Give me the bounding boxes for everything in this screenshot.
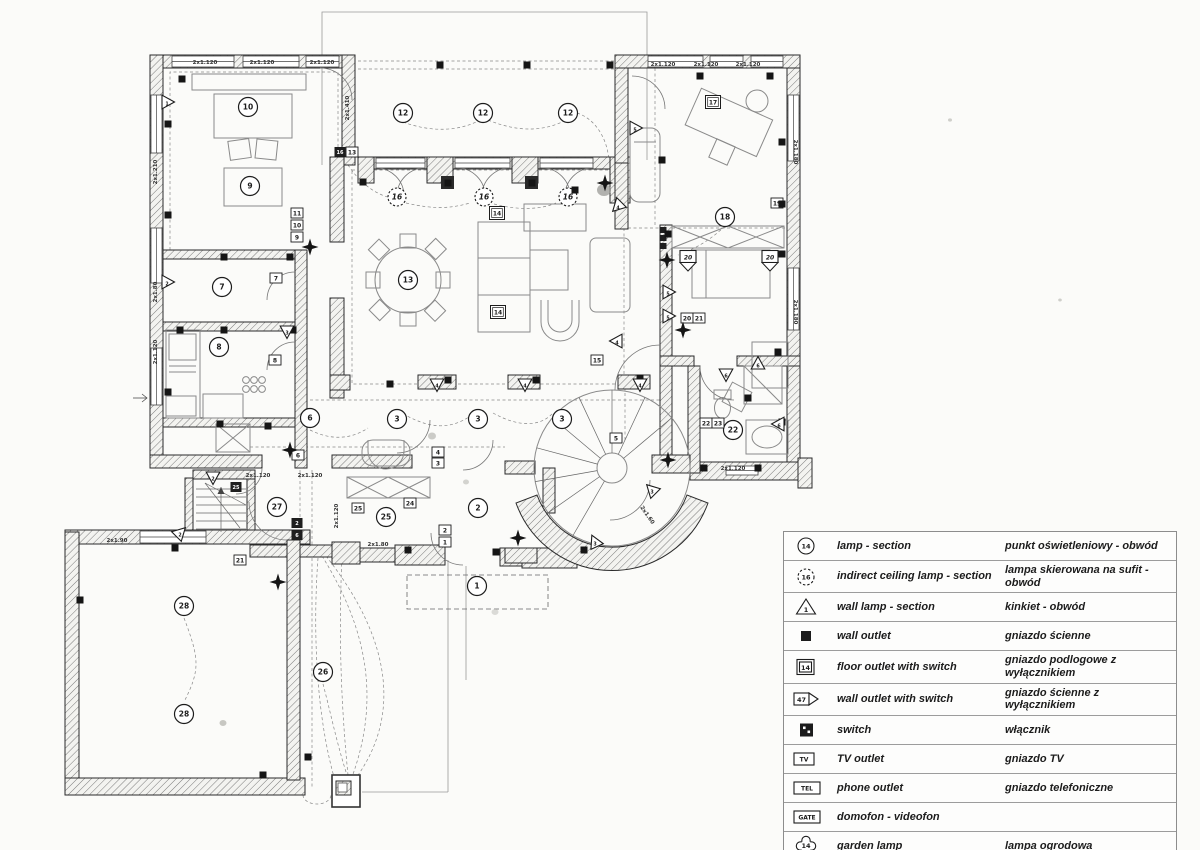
wall-outlet-symbol [745, 395, 752, 402]
svg-text:10: 10 [293, 222, 301, 229]
legend-label-pl: lampa ogrodowa [1005, 840, 1172, 850]
circle-icon: 14 [791, 535, 823, 557]
svg-text:20: 20 [684, 255, 692, 262]
boxed-label: 7 [270, 273, 282, 283]
room-number-circle: 18 [716, 208, 735, 227]
boxed-label: 9 [291, 232, 303, 242]
wall-outlet-symbol [260, 772, 267, 779]
legend-label-en: lamp - section [837, 540, 1005, 553]
svg-text:25: 25 [233, 485, 240, 491]
boxed-label: 21 [693, 313, 705, 323]
legend-symbol: 16 [791, 566, 837, 588]
boxed-label: 20 [680, 251, 696, 272]
svg-text:7: 7 [219, 283, 224, 292]
svg-text:2: 2 [475, 504, 480, 513]
indirect-lamp-circle: 16 [388, 188, 406, 206]
room-number-circle: 26 [314, 663, 333, 682]
wall-outlet-symbol [221, 254, 228, 261]
svg-text:6: 6 [296, 452, 300, 459]
wall-outlet-symbol [165, 389, 172, 396]
legend-row: switchwłącznik [784, 715, 1176, 744]
svg-text:1: 1 [165, 101, 168, 107]
svg-text:5: 5 [614, 435, 618, 442]
svg-text:25: 25 [381, 513, 391, 522]
legend-label-en: floor outlet with switch [837, 661, 1005, 674]
box-icon: GATE [791, 806, 823, 828]
boxed-label: 5 [610, 433, 622, 443]
legend-label-en: indirect ceiling lamp - section [837, 570, 1005, 583]
boxed-label: 21 [234, 555, 246, 565]
legend-label-en: phone outlet [837, 782, 1005, 795]
boxed-label: 4 [432, 447, 444, 457]
svg-text:14: 14 [801, 664, 811, 672]
room-number-circle: 12 [474, 104, 493, 123]
dimension-label: 2x1.80 [368, 542, 389, 548]
dimension-label: 2x1.120 [694, 62, 719, 68]
svg-text:3: 3 [559, 415, 564, 424]
svg-text:4: 4 [436, 449, 440, 456]
svg-text:7: 7 [274, 275, 278, 282]
legend-label-en: garden lamp [837, 840, 1005, 850]
svg-text:2: 2 [211, 476, 214, 482]
wall-lamp-symbol: 6 [772, 417, 785, 431]
svg-text:28: 28 [179, 710, 189, 719]
wall-outlet-symbol [287, 254, 294, 261]
svg-text:6: 6 [295, 533, 299, 539]
boxed-label: 20 [762, 251, 778, 272]
room-number-circle: 2 [469, 499, 488, 518]
boxed-label: 1 [439, 537, 451, 547]
boxed-label: 17 [706, 96, 721, 109]
legend-row: 1wall lamp - sectionkinkiet - obwód [784, 592, 1176, 621]
svg-text:26: 26 [318, 668, 328, 677]
svg-text:2: 2 [165, 281, 168, 287]
svg-text:47: 47 [797, 696, 806, 704]
svg-text:5: 5 [666, 315, 669, 321]
legend-label-pl: gniazdo podlogowe z wyłącznikiem [1005, 654, 1172, 679]
room-number-circle: 8 [210, 338, 229, 357]
svg-text:1: 1 [474, 582, 479, 591]
wall-lamp-symbol: 1 [162, 95, 175, 109]
svg-text:5: 5 [633, 127, 636, 133]
wall-outlet-symbol [172, 545, 179, 552]
double-box-icon: 14 [791, 656, 823, 678]
wall-outlet-symbol [305, 754, 312, 761]
wall-outlet-symbol [387, 381, 394, 388]
vacuum-outlet-symbol [675, 322, 692, 339]
room-number-circle: 12 [559, 104, 578, 123]
boxed-label: 22 [700, 418, 712, 428]
wall-outlet-symbol [779, 201, 786, 208]
svg-text:14: 14 [801, 842, 811, 850]
svg-text:10: 10 [243, 103, 253, 112]
wall-outlet-symbol [360, 179, 367, 186]
dimension-label: 2x1.120 [736, 62, 761, 68]
boxed-label: 25 [231, 483, 241, 492]
svg-text:28: 28 [179, 602, 189, 611]
legend-symbol: 14 [791, 535, 837, 557]
filled-square-icon [791, 625, 823, 647]
dimension-label: 2x1.60 [638, 505, 655, 526]
legend-label-pl: gniazdo telefoniczne [1005, 782, 1172, 795]
svg-text:14: 14 [494, 309, 502, 316]
boxed-label: 3 [432, 458, 444, 468]
svg-text:16: 16 [479, 192, 489, 201]
legend-symbol: 47 [791, 688, 837, 710]
svg-text:21: 21 [236, 557, 244, 564]
svg-text:3: 3 [285, 330, 288, 336]
wall-outlet-symbol [755, 465, 762, 472]
legend-label-pl: punkt oświetleniowy - obwód [1005, 540, 1172, 553]
wall-lamp-symbol: 3 [642, 480, 660, 498]
boxed-label: 11 [291, 208, 303, 218]
wall-outlet-symbol [177, 327, 184, 334]
dimension-label: 2x1.210 [153, 159, 159, 184]
boxed-label: 14 [490, 207, 505, 220]
svg-text:3: 3 [593, 541, 596, 547]
legend-symbol [791, 625, 837, 647]
legend-row: TELphone outletgniazdo telefoniczne [784, 773, 1176, 802]
legend-row: 14lamp - sectionpunkt oświetleniowy - ob… [784, 532, 1176, 560]
room-number-circle: 3 [469, 410, 488, 429]
svg-text:13: 13 [348, 149, 356, 156]
legend-label-en: wall outlet with switch [837, 693, 1005, 706]
box-icon: TEL [791, 777, 823, 799]
boxed-label: 20 [681, 313, 693, 323]
vacuum-outlet-symbol [270, 574, 287, 591]
svg-text:27: 27 [272, 503, 282, 512]
legend-row: 14garden lamplampa ogrodowa [784, 831, 1176, 850]
svg-text:3: 3 [394, 415, 399, 424]
room-number-circle: 28 [175, 597, 194, 616]
svg-text:9: 9 [295, 234, 299, 241]
boxed-label: 2 [292, 519, 302, 528]
svg-text:22: 22 [728, 426, 738, 435]
indirect-lamp-circle: 16 [475, 188, 493, 206]
room-number-circle: 25 [377, 508, 396, 527]
wall-outlet-symbol [665, 231, 672, 238]
svg-text:20: 20 [766, 255, 774, 262]
svg-text:GATE: GATE [798, 814, 815, 821]
boxed-label: 14 [491, 306, 506, 319]
wall-lamp-symbol: 5 [630, 121, 643, 135]
svg-text:21: 21 [695, 315, 703, 322]
wall-outlet-symbol [533, 377, 540, 384]
dimension-label: 2x1.120 [651, 62, 676, 68]
dimension-label: 2x1.120 [721, 466, 746, 472]
dashed-circle-icon: 16 [791, 566, 823, 588]
svg-text:1: 1 [443, 539, 447, 546]
legend-symbol: 14 [791, 656, 837, 678]
svg-text:17: 17 [709, 99, 717, 106]
boxed-label: 6 [292, 450, 304, 460]
wall-outlet-symbol [572, 187, 579, 194]
svg-text:12: 12 [563, 109, 573, 118]
legend-label-en: wall lamp - section [837, 601, 1005, 614]
legend-symbol: GATE [791, 806, 837, 828]
svg-text:16: 16 [563, 192, 573, 201]
legend-label-pl: kinkiet - obwód [1005, 601, 1172, 614]
room-number-circle: 27 [268, 498, 287, 517]
room-number-circle: 9 [241, 177, 260, 196]
wall-outlet-symbol [779, 139, 786, 146]
legend-label-pl: lampa skierowana na sufit - obwód [1005, 564, 1172, 589]
svg-text:5: 5 [666, 291, 669, 297]
wall-outlet-symbol [581, 547, 588, 554]
legend-symbol: 1 [791, 596, 837, 618]
room-number-circle: 22 [724, 421, 743, 440]
legend-label-pl: gniazdo ścienne z wyłącznikiem [1005, 687, 1172, 712]
wall-outlet-symbol [165, 121, 172, 128]
svg-text:12: 12 [398, 109, 408, 118]
legend-row: 14floor outlet with switchgniazdo podlog… [784, 650, 1176, 682]
svg-text:8: 8 [216, 343, 221, 352]
boxed-label: 16 [335, 148, 345, 157]
svg-text:TEL: TEL [801, 785, 813, 792]
dimension-label: 2x1.120 [250, 60, 275, 66]
boxed-label: 23 [712, 418, 724, 428]
boxed-label: 15 [591, 355, 603, 365]
wall-outlet-symbol [659, 157, 666, 164]
dimension-label: 2x1.180 [792, 140, 798, 165]
dimension-label: 2x1.120 [193, 60, 218, 66]
boxed-label: 25 [352, 503, 364, 513]
svg-text:13: 13 [403, 276, 413, 285]
dimension-label: 2x1.410 [345, 95, 351, 120]
wall-outlet-symbol [524, 62, 531, 69]
svg-text:2: 2 [178, 532, 181, 538]
wall-outlet-symbol [445, 377, 452, 384]
flower-icon: 14 [791, 835, 823, 850]
boxed-label [660, 243, 667, 249]
legend-label-en: domofon - videofon [837, 811, 1005, 824]
switch-icon [791, 719, 823, 741]
wall-outlet-symbol [221, 327, 228, 334]
legend-row: 47wall outlet with switchgniazdo ścienne… [784, 683, 1176, 715]
legend-row: 16indirect ceiling lamp - sectionlampa s… [784, 560, 1176, 592]
wall-outlet-symbol [775, 349, 782, 356]
boxed-label: 8 [269, 355, 281, 365]
svg-text:12: 12 [478, 109, 488, 118]
svg-text:15: 15 [593, 357, 601, 364]
wall-outlet-symbol [165, 212, 172, 219]
wall-lamp-symbol: 2 [162, 275, 175, 289]
wall-outlet-symbol [217, 421, 224, 428]
room-number-circle: 12 [394, 104, 413, 123]
wall-outlet-symbol [607, 62, 614, 69]
boxed-label: 6 [292, 531, 302, 540]
wall-outlet-symbol [405, 547, 412, 554]
legend-row: GATEdomofon - videofon [784, 802, 1176, 831]
legend-symbol: TEL [791, 777, 837, 799]
legend-label-en: TV outlet [837, 753, 1005, 766]
svg-text:16: 16 [801, 573, 811, 581]
legend-table: 14lamp - sectionpunkt oświetleniowy - ob… [783, 531, 1177, 850]
box-icon: TV [791, 748, 823, 770]
wall-outlet-symbol [529, 180, 536, 187]
svg-text:3: 3 [436, 460, 440, 467]
svg-text:23: 23 [714, 420, 722, 427]
legend-symbol: TV [791, 748, 837, 770]
svg-text:8: 8 [273, 357, 277, 364]
wall-outlet-symbol [437, 62, 444, 69]
wall-outlet-symbol [445, 180, 452, 187]
room-number-circle: 10 [239, 98, 258, 117]
pennant-box-icon: 47 [791, 688, 823, 710]
dimension-label: 2x1.90 [107, 538, 128, 544]
wall-outlet-symbol [179, 76, 186, 83]
legend-label-en: wall outlet [837, 630, 1005, 643]
room-number-circle: 7 [213, 278, 232, 297]
wall-outlet-symbol [767, 73, 774, 80]
svg-text:3: 3 [650, 489, 653, 495]
legend-label-pl: włącznik [1005, 724, 1172, 737]
svg-text:18: 18 [720, 213, 730, 222]
dimension-label: 2x1.180 [792, 300, 798, 325]
wall-lamp-symbol: 4 [610, 334, 623, 348]
room-number-circle: 6 [301, 409, 320, 428]
dimension-label: 2x1.120 [334, 503, 340, 528]
legend-row: wall outletgniazdo ścienne [784, 621, 1176, 650]
svg-text:14: 14 [493, 210, 501, 217]
svg-text:6: 6 [307, 414, 312, 423]
svg-text:2: 2 [443, 527, 447, 534]
dimension-label: 2x1.120 [298, 473, 323, 479]
dimension-label: 2x1.120 [153, 339, 159, 364]
boxed-label: 10 [291, 220, 303, 230]
room-number-circle: 3 [388, 410, 407, 429]
dimension-label: 2x1.80 [153, 281, 159, 302]
svg-text:3: 3 [475, 415, 480, 424]
svg-text:14: 14 [801, 543, 811, 551]
vacuum-outlet-symbol [510, 530, 527, 547]
wall-outlet-symbol [701, 465, 708, 472]
boxed-label: 2 [439, 525, 451, 535]
wall-outlet-symbol [77, 597, 84, 604]
svg-text:TV: TV [800, 756, 809, 763]
legend-label-pl: gniazdo TV [1005, 753, 1172, 766]
legend-label-pl: gniazdo ścienne [1005, 630, 1172, 643]
svg-text:16: 16 [337, 150, 344, 156]
legend-label-en: switch [837, 724, 1005, 737]
floor-plan-page: 1097861212121318223332725212828261616161… [0, 0, 1200, 850]
triangle-icon: 1 [791, 596, 823, 618]
svg-text:2: 2 [295, 521, 299, 527]
wall-outlet-symbol [697, 73, 704, 80]
svg-text:11: 11 [293, 210, 301, 217]
legend-row: TVTV outletgniazdo TV [784, 744, 1176, 773]
boxed-label: 13 [346, 147, 358, 157]
room-number-circle: 28 [175, 705, 194, 724]
legend-symbol [791, 719, 837, 741]
svg-text:25: 25 [354, 505, 362, 512]
room-number-circle: 1 [468, 577, 487, 596]
room-number-circle: 3 [553, 410, 572, 429]
wall-outlet-symbol [779, 251, 786, 258]
wall-outlet-symbol [265, 423, 272, 430]
boxed-label: 24 [404, 498, 416, 508]
svg-text:1: 1 [804, 606, 809, 614]
svg-text:20: 20 [683, 315, 691, 322]
room-number-circle: 13 [399, 271, 418, 290]
svg-text:22: 22 [702, 420, 710, 427]
svg-text:9: 9 [247, 182, 252, 191]
wall-outlet-symbol [493, 549, 500, 556]
dimension-label: 2x1.120 [246, 473, 271, 479]
wall-lamp-symbol: 6 [719, 369, 733, 382]
legend-symbol: 14 [791, 835, 837, 850]
dimension-label: 2x1.120 [310, 60, 335, 66]
svg-text:16: 16 [392, 192, 402, 201]
svg-text:24: 24 [406, 500, 414, 507]
